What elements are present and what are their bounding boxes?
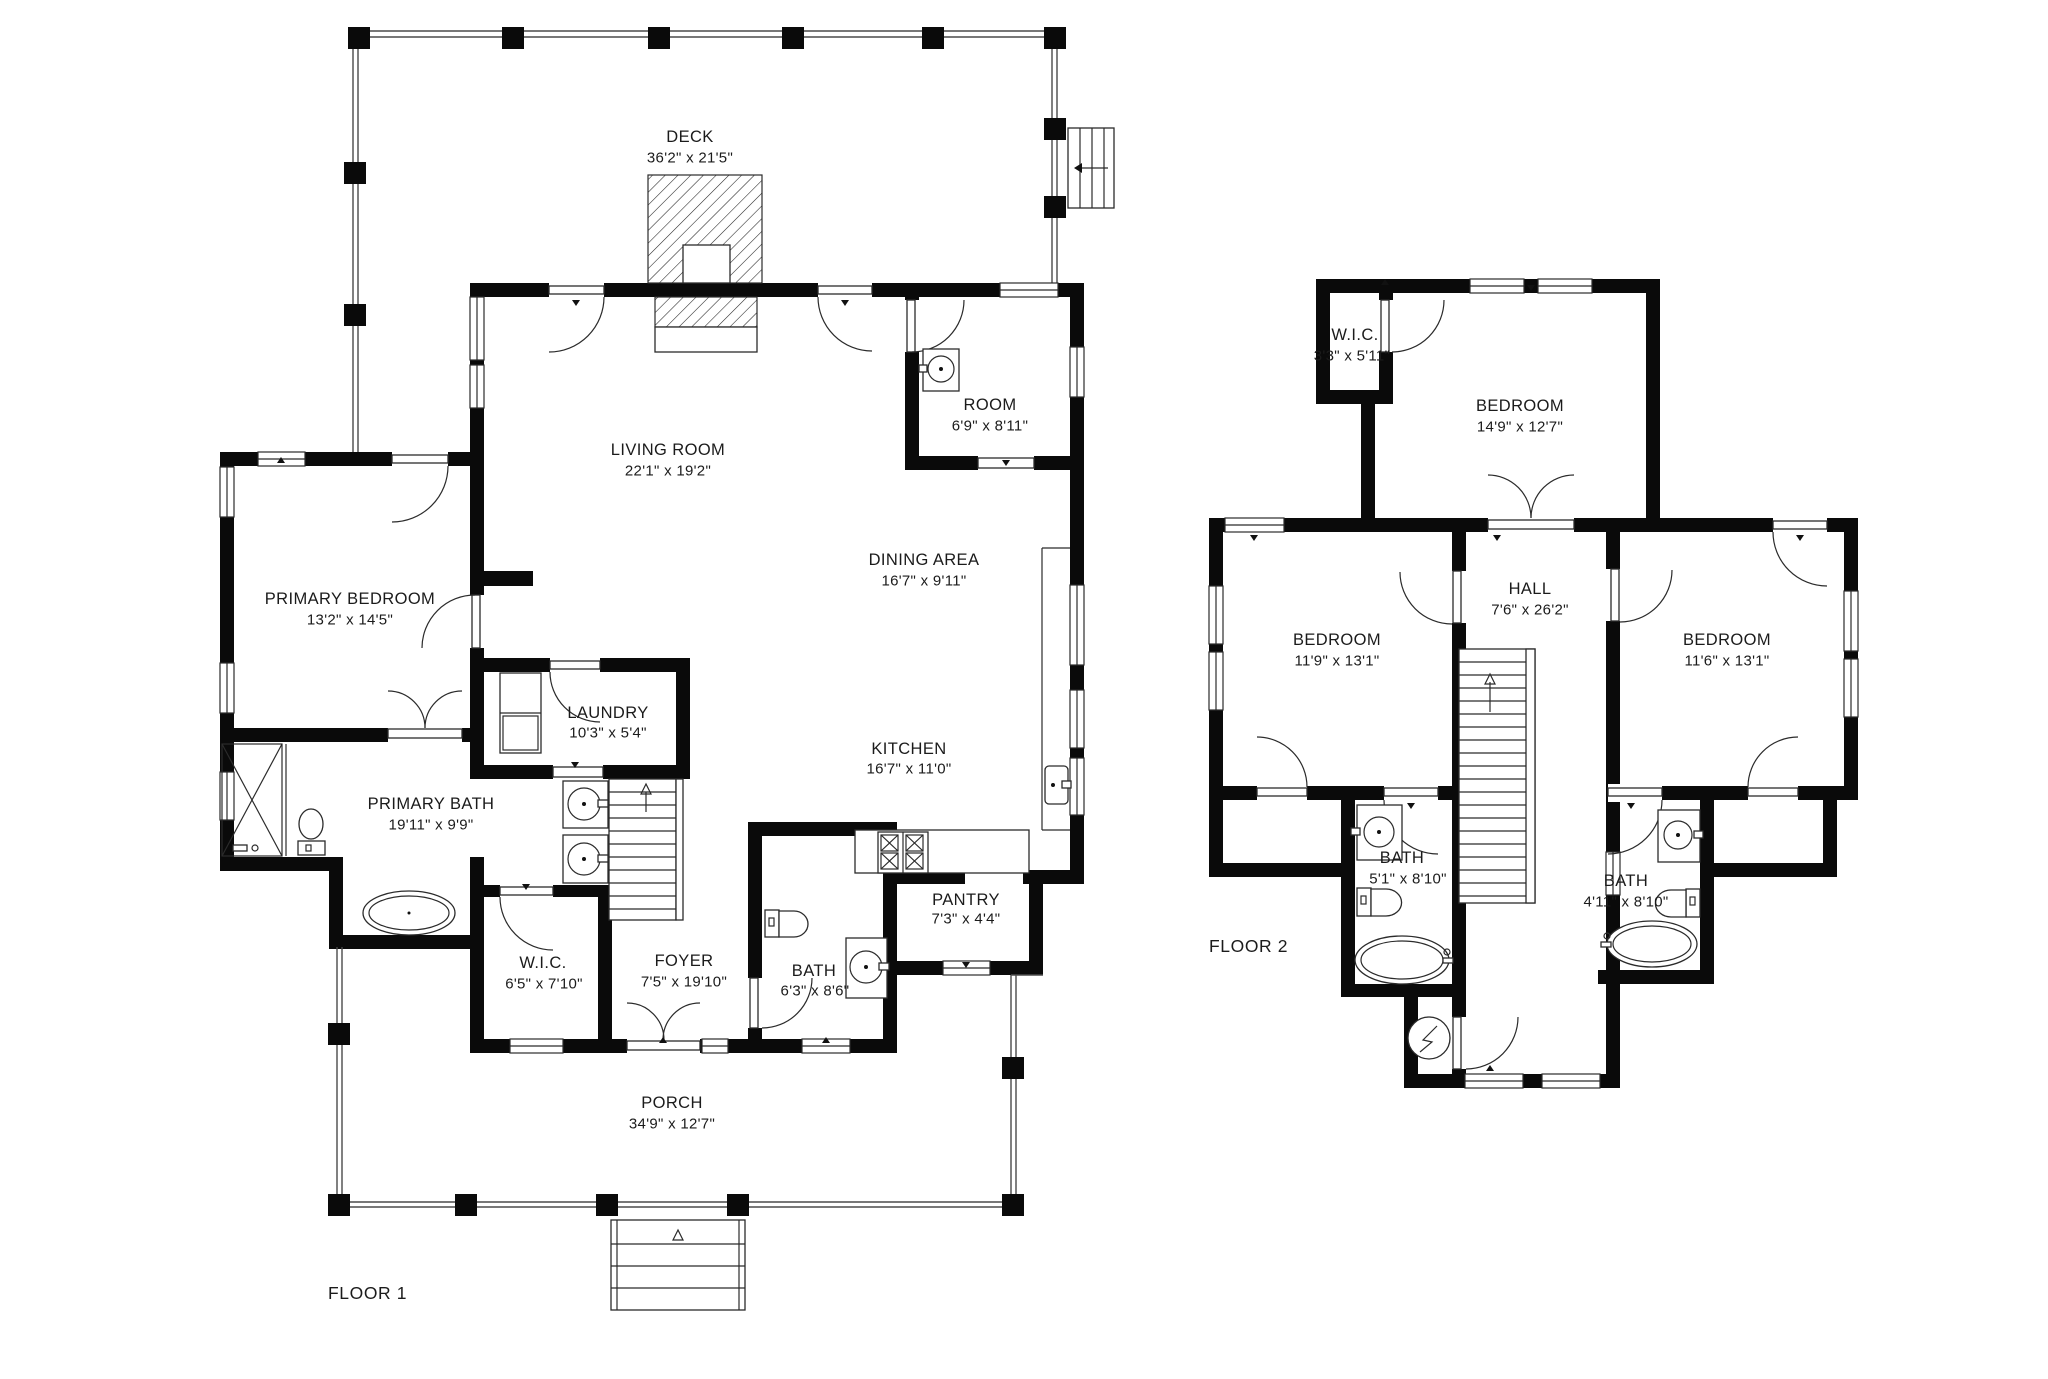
sink-icon (1658, 810, 1703, 862)
bathtub-icon (1355, 936, 1453, 984)
room-dims-deck: 36'2" x 21'5" (647, 150, 733, 167)
room-dims-foyer: 7'5" x 19'10" (641, 974, 727, 991)
window-icon (1225, 518, 1284, 532)
room-label-primary-bath: PRIMARY BATH (368, 795, 495, 813)
room-label-dining-area: DINING AREA (869, 551, 980, 569)
door-icon (903, 300, 964, 352)
window-icon (1844, 591, 1858, 651)
room-label-bath-right: BATH (1604, 872, 1648, 890)
window-icon (1209, 586, 1223, 644)
window-icon (1538, 279, 1592, 293)
door-icon (549, 282, 604, 352)
room-label-bath: BATH (792, 962, 836, 980)
room-label-bath-left: BATH (1380, 849, 1424, 867)
room-label-bedroom-right: BEDROOM (1683, 631, 1771, 649)
room-dims-pantry: 7'3" x 4'4" (932, 911, 1001, 928)
toilet-icon (1357, 888, 1402, 916)
double-door-icon (388, 691, 462, 743)
sink-icon (563, 781, 608, 828)
room-dims-kitchen: 16'7" x 11'0" (866, 761, 951, 778)
door-icon (1748, 737, 1798, 802)
room-dims-room: 6'9" x 8'11" (952, 418, 1028, 435)
electrical-panel-icon (1408, 1017, 1450, 1059)
window-icon (1209, 652, 1223, 710)
window-icon (470, 365, 484, 408)
stove-icon (855, 830, 1029, 873)
deck-stairs-icon (1068, 128, 1114, 208)
sink-icon (846, 938, 889, 998)
door-icon (1400, 571, 1468, 624)
room-label-deck: DECK (666, 128, 713, 146)
floor1-plan: DECK 36'2" x 21'5" LIVING ROOM 22'1" x 1… (220, 27, 1114, 1310)
stairs-icon (609, 779, 683, 920)
floor-plan-canvas: DECK 36'2" x 21'5" LIVING ROOM 22'1" x 1… (0, 0, 2048, 1379)
room-label-hall: HALL (1509, 580, 1552, 598)
door-icon (1377, 300, 1444, 352)
room-dims-laundry: 10'3" x 5'4" (569, 725, 647, 742)
window-icon (1070, 347, 1084, 397)
floor1-label: FLOOR 1 (328, 1283, 407, 1303)
window-icon (1470, 279, 1524, 293)
room-dims-primary-bath: 19'11" x 9'9" (388, 817, 473, 834)
double-door-icon (1488, 475, 1574, 534)
room-label-bedroom-top: BEDROOM (1476, 397, 1564, 415)
window-icon (510, 1039, 563, 1053)
window-icon (1844, 659, 1858, 717)
window-icon (220, 467, 234, 517)
room-label-kitchen: KITCHEN (871, 740, 946, 758)
door-icon (1257, 737, 1307, 802)
room-label-laundry: LAUNDRY (567, 704, 648, 722)
room-label-wic: W.I.C. (519, 954, 566, 972)
floorplan-svg: DECK 36'2" x 21'5" LIVING ROOM 22'1" x 1… (0, 0, 2048, 1379)
room-dims-bath: 6'3" x 8'6" (781, 983, 850, 1000)
door-icon (1450, 1017, 1518, 1069)
room-dims-bedroom-right: 11'6" x 13'1" (1684, 653, 1769, 670)
window-icon (1070, 758, 1084, 815)
floor2-label: FLOOR 2 (1209, 936, 1288, 956)
room-label-living-room: LIVING ROOM (611, 441, 725, 459)
room-dims-bath-left: 5'1" x 8'10" (1369, 871, 1447, 888)
room-label-primary-bedroom: PRIMARY BEDROOM (265, 590, 435, 608)
toilet-icon (298, 809, 325, 855)
room-dims-bedroom-top: 14'9" x 12'7" (1477, 419, 1563, 436)
porch-stairs-icon (611, 1220, 745, 1310)
sink-icon (1045, 766, 1071, 804)
room-label-pantry: PANTRY (932, 891, 1000, 909)
door-icon (1604, 569, 1672, 622)
sink-icon (563, 835, 608, 883)
kitchen-counter (1042, 548, 1071, 830)
room-dims-living-room: 22'1" x 19'2" (625, 463, 711, 480)
room-dims-dining-area: 16'7" x 9'11" (881, 573, 966, 590)
double-door-icon (627, 1003, 700, 1055)
room-dims-bedroom-left: 11'9" x 13'1" (1294, 653, 1379, 670)
toilet-icon (765, 910, 808, 937)
door-icon (500, 883, 553, 950)
room-label-porch: PORCH (641, 1094, 703, 1112)
floor1-walls (220, 283, 1084, 1053)
window-icon (1070, 690, 1084, 748)
floor2-plan: W.I.C. 3'3" x 5'11" BEDROOM 14'9" x 12'7… (1209, 279, 1858, 1088)
window-icon (702, 1039, 728, 1053)
door-icon (818, 282, 872, 351)
washer-dryer-icon (500, 673, 541, 753)
room-dims-hall: 7'6" x 26'2" (1491, 602, 1569, 619)
door-icon (1773, 516, 1827, 586)
window-icon (1000, 283, 1058, 297)
room-dims-wic2: 3'3" x 5'11" (1314, 348, 1390, 365)
room-dims-porch: 34'9" x 12'7" (629, 1116, 715, 1133)
window-icon (1070, 585, 1084, 665)
window-icon (1465, 1074, 1523, 1088)
sink-icon (919, 349, 959, 391)
room-label-room: ROOM (964, 396, 1017, 414)
room-dims-primary-bedroom: 13'2" x 14'5" (307, 612, 393, 629)
bathtub-icon (363, 891, 455, 935)
room-label-foyer: FOYER (655, 952, 714, 970)
fireplace-icon (648, 175, 762, 352)
room-dims-wic: 6'5" x 7'10" (505, 976, 583, 993)
room-dims-bath-right: 4'11" x 8'10" (1583, 894, 1668, 911)
room-label-bedroom-left: BEDROOM (1293, 631, 1381, 649)
window-icon (1542, 1074, 1600, 1088)
window-icon (470, 297, 484, 360)
room-label-wic2: W.I.C. (1331, 326, 1378, 344)
door-icon (392, 451, 448, 522)
stairs-icon (1459, 649, 1535, 903)
cased-opening-icon (553, 764, 603, 780)
window-icon (220, 663, 234, 713)
